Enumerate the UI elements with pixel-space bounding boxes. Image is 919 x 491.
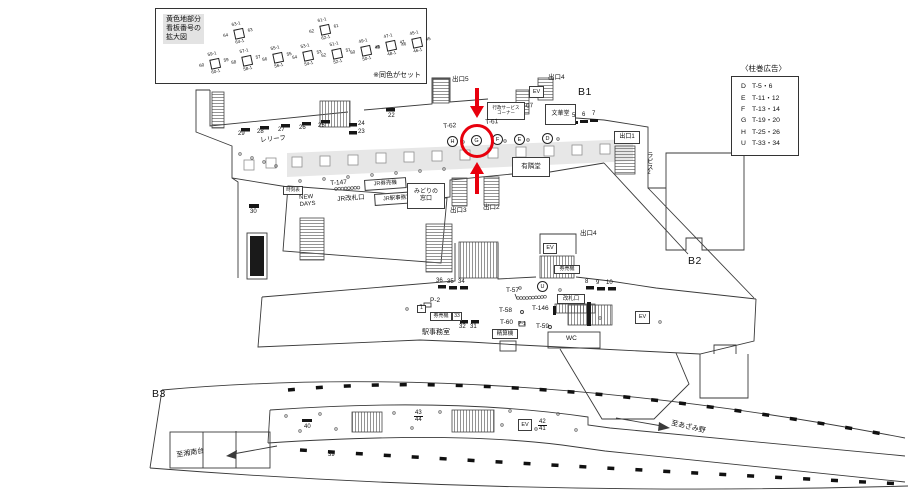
b2-sign-34: 34 <box>458 279 465 286</box>
cluster-bottom: 54-1 <box>304 60 314 66</box>
b1-sign-7: 7 <box>592 111 595 118</box>
pillar-ads-row: GT-19・20 <box>741 118 798 125</box>
pillar-key: H <box>741 130 752 137</box>
sign-cluster: 59-1 60 59 60-1 <box>197 50 231 76</box>
cluster-top: 61-1 <box>317 17 327 23</box>
legend-heading: 黄色地部分 看板番号の 拡大図 <box>163 14 204 44</box>
pillar-key: G <box>741 118 752 125</box>
pillar-value: T-19・20 <box>752 118 780 125</box>
cluster-left: 56 <box>262 57 268 62</box>
pillar-value: T-11・12 <box>752 96 779 103</box>
b1-sign-27: 27 <box>278 127 285 134</box>
b2-board-t146: T-146 <box>532 305 549 312</box>
b1-exit5-label: 出口5 <box>452 76 469 83</box>
cluster-bottom: 52-1 <box>333 58 343 64</box>
b2-sign-9: 9 <box>596 280 599 287</box>
cluster-left: 64 <box>223 33 229 38</box>
highlight-arrow-down-head <box>470 106 484 118</box>
cluster-left: 48 <box>375 45 381 50</box>
b1-board-t147: T-147 <box>330 179 347 188</box>
highlight-arrow-down-shaft <box>475 88 479 106</box>
b2-sign-33: 33 <box>452 312 462 321</box>
b2-restroom-label: WC <box>566 335 577 342</box>
b3-elevator: EV <box>518 419 532 431</box>
pillar-value: T-33・34 <box>752 141 780 148</box>
cluster-left: 46 <box>401 42 407 47</box>
b1-pillar-D: D <box>542 133 553 144</box>
b1-elevator: EV <box>529 86 544 98</box>
b1-sign-28: 28 <box>257 129 264 136</box>
b1-pillar-E: E <box>514 134 525 145</box>
pillar-ads-row: FT-13・14 <box>741 107 798 114</box>
b1-sign-26: 26 <box>299 125 306 132</box>
pillar-key: E <box>741 96 752 103</box>
cluster-bottom: 46-1 <box>413 47 423 53</box>
b1-yurindo-store: 有隣堂 <box>512 157 550 177</box>
cluster-right: 57 <box>255 55 261 60</box>
cluster-bottom: 50-1 <box>362 55 372 61</box>
b1-sign-29: 29 <box>238 131 245 138</box>
b1-sign-25: 25 <box>318 123 325 130</box>
cluster-bottom: 48-1 <box>387 50 397 56</box>
cluster-bottom: 62-1 <box>321 34 331 40</box>
highlight-arrow-up-shaft <box>475 174 479 194</box>
b1-timetable-board: 時刻表 <box>283 186 303 195</box>
cluster-left: 54 <box>292 55 298 60</box>
b2-exit4-label: 出口4 <box>580 230 597 237</box>
b2-board-p2: P-2 <box>430 297 440 304</box>
cluster-right: 45 <box>425 37 431 42</box>
b2-station-office: 駅事務室 <box>422 329 450 337</box>
b2-sign-31: 31 <box>470 324 477 331</box>
b1-admin-service-corner: 行政サービス コーナー <box>487 102 525 120</box>
b2-sign-1: 1 <box>417 305 426 313</box>
cluster-right: 63 <box>247 28 253 33</box>
b2-board-p1: P-1 <box>518 322 526 328</box>
b3-sign-41: 41 <box>538 425 547 432</box>
highlight-arrow-up-head <box>470 162 484 174</box>
cluster-left: 52 <box>321 53 327 58</box>
b3-sign-40: 40 <box>304 424 311 431</box>
b2-sign-35: 35 <box>447 279 454 286</box>
b3-sign-44: 44 <box>414 416 423 423</box>
cluster-left: 62 <box>309 29 315 34</box>
b1-pillar-H: H <box>447 136 458 147</box>
cluster-right: 59 <box>223 58 229 63</box>
b2-sign-36: 36 <box>436 278 443 285</box>
cluster-top: 59-1 <box>207 51 217 57</box>
b2-sign-32: 32 <box>459 324 466 331</box>
pillar-value: T-13・14 <box>752 107 780 114</box>
cluster-bottom: 64-1 <box>235 38 245 44</box>
b1-exit1-label: 出口1 <box>614 131 640 144</box>
b3-sign-42-41: 42 41 <box>538 419 547 433</box>
b1-midori-no-madoguchi: みどりの 窓口 <box>407 183 445 209</box>
b1-sign-23: 23 <box>358 129 365 136</box>
pillar-key: D <box>741 84 752 91</box>
b1-exit2-label: 出口2 <box>483 204 500 211</box>
station-floorplan: 黄色地部分 看板番号の 拡大図 ※同色がセット 63-1 64 63 64-1 … <box>0 0 919 491</box>
cluster-right: 61 <box>333 24 339 29</box>
b2-ticket-machine-lower: 券売機 <box>430 312 452 321</box>
b1-sign-30: 30 <box>250 209 257 216</box>
pillar-value: T-25・26 <box>752 130 780 137</box>
cluster-top: 47-1 <box>383 33 393 39</box>
b2-ticket-gate: 改札口 <box>557 294 585 304</box>
b2-board-t59: T-59 <box>536 323 549 330</box>
b1-floor-label: B1 <box>578 86 592 98</box>
cluster-top: 63-1 <box>231 21 241 27</box>
b1-sign-6: 6 <box>582 112 585 119</box>
b2-board-t58: T-58 <box>499 307 512 314</box>
b3-sign-39: 39 <box>328 452 335 459</box>
b1-lapis2-building: ラピス2 <box>645 152 652 176</box>
cluster-left: 60 <box>199 63 205 68</box>
b2-sign-8: 8 <box>585 279 588 286</box>
b1-sign-22: 22 <box>388 113 395 120</box>
cluster-bottom: 56-1 <box>274 62 284 68</box>
sign-cluster: 61-1 62 61 62-1 <box>307 16 341 42</box>
b1-sign-24: 24 <box>358 121 365 128</box>
cluster-bottom: 58-1 <box>243 65 253 71</box>
cluster-top: 49-1 <box>358 38 368 44</box>
pillar-ads-row: UT-33・34 <box>741 141 798 148</box>
b2-fare-adjustment-machine: 精算機 <box>492 329 518 339</box>
pillar-ads-table: DT-5・6 ET-11・12 FT-13・14 GT-19・20 HT-25・… <box>731 76 799 156</box>
b1-exit4-label: 出口4 <box>548 74 565 81</box>
highlight-circle <box>460 124 494 158</box>
cluster-top: 51-1 <box>329 41 339 47</box>
b3-floor-label: B3 <box>152 388 166 400</box>
legend-note: ※同色がセット <box>373 70 421 80</box>
b2-elevator: EV <box>543 243 557 254</box>
pillar-ads-row: ET-11・12 <box>741 96 798 103</box>
sign-cluster: 57-1 58 57 58-1 <box>229 47 263 73</box>
legend-sign-numbers: 黄色地部分 看板番号の 拡大図 ※同色がセット 63-1 64 63 64-1 … <box>155 8 427 84</box>
cluster-top: 57-1 <box>239 48 249 54</box>
sign-cluster: 55-1 56 55 56-1 <box>260 44 294 70</box>
cluster-top: 53-1 <box>300 43 310 49</box>
pillar-ads-row: HT-25・26 <box>741 130 798 137</box>
b1-board-t61: T-61 <box>485 118 499 126</box>
sign-cluster: 63-1 64 63 64-1 <box>221 20 255 46</box>
pillar-ads-row: DT-5・6 <box>741 84 798 91</box>
cluster-bottom: 60-1 <box>211 68 221 74</box>
b1-exit3-label: 出口3 <box>450 207 467 214</box>
b2-board-t57: T-57 <box>506 287 519 294</box>
b2-floor-label: B2 <box>688 255 702 267</box>
pillar-key: F <box>741 107 752 114</box>
b2-elevator-right: EV <box>635 311 650 324</box>
b1-board-t62: T-62 <box>443 122 457 130</box>
pillar-value: T-5・6 <box>752 84 772 91</box>
pillar-key: U <box>741 141 752 148</box>
cluster-left: 50 <box>350 50 356 55</box>
b2-board-t60: T-60 <box>500 319 513 326</box>
b2-pillar-U: U <box>537 281 548 292</box>
b1-newdays-store: NEW DAYS <box>299 194 316 209</box>
b2-sign-10: 10 <box>606 280 613 287</box>
cluster-top: 55-1 <box>270 45 280 51</box>
b1-sign-5: 5 <box>572 113 575 120</box>
cluster-left: 58 <box>231 60 237 65</box>
cluster-top: 45-1 <box>409 30 419 36</box>
pillar-ads-title: 〈柱巻広告〉 <box>741 63 786 74</box>
b2-ticket-machine-upper: 券売機 <box>554 265 580 274</box>
b3-sign-43-44: 43 44 <box>414 410 423 424</box>
